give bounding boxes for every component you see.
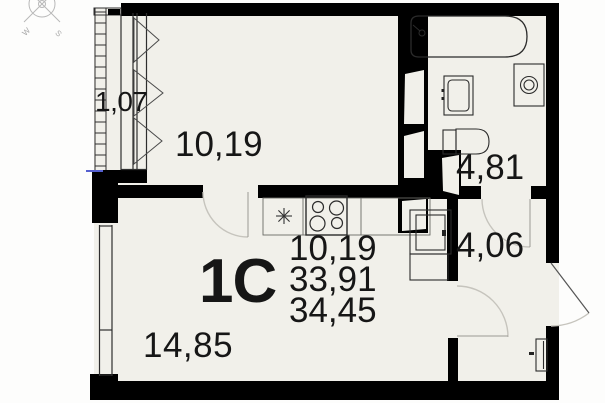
floor-plan: W S 1,07 10,19 4,81 4,06 14,85 1C 10,19 … [0,0,605,403]
floor-plan-drawing: W S [0,0,605,403]
compass-south-label: S [53,28,63,38]
kitchen-sink-star-icon [276,208,292,224]
balcony-area-label: 1,07 [95,88,148,116]
living-room-area-label: 14,85 [143,328,233,363]
bathroom-area-label: 4,81 [456,150,524,185]
balcony-top-cap-block [108,9,120,15]
wall-right-upper [546,16,559,263]
room-area-label: 10,19 [175,127,263,162]
wall-left-mid-block [92,183,118,223]
apartment-type-label: 1C [199,251,276,313]
wall-bathroom-bottom-right [531,186,546,199]
wall-bottom [90,381,559,400]
wall-room-living-left [118,185,203,198]
wall-top [121,3,559,16]
compass-icon: W S [20,0,63,39]
area-summary: 10,19 33,91 34,45 [289,233,377,326]
vent-shaft [404,131,424,178]
vent-shaft [404,70,424,124]
area-summary-total: 34,45 [289,295,377,326]
hallway-area-label: 4,06 [456,228,524,263]
wall-hallway-left-lower [448,338,458,383]
compass-west-label: W [20,26,32,38]
entrance-doorway-floor [546,263,559,326]
